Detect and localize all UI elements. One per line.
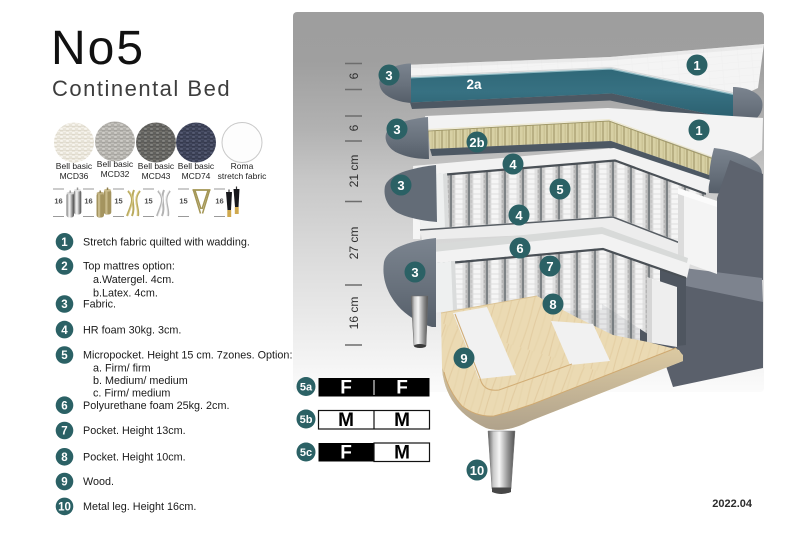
svg-text:M: M [338, 410, 354, 431]
svg-text:15: 15 [179, 197, 187, 206]
svg-text:15: 15 [114, 197, 122, 206]
svg-text:a. Firm/ firm: a. Firm/ firm [93, 362, 151, 374]
svg-text:M: M [394, 443, 410, 464]
svg-text:Wood.: Wood. [83, 476, 114, 488]
svg-text:4: 4 [61, 325, 68, 337]
svg-text:16: 16 [84, 197, 92, 206]
svg-text:Bell basic: Bell basic [56, 161, 93, 171]
svg-text:Bell basic: Bell basic [178, 161, 215, 171]
svg-text:8: 8 [549, 297, 556, 312]
svg-text:6: 6 [61, 400, 67, 412]
svg-text:Pocket. Height 10cm.: Pocket. Height 10cm. [83, 452, 186, 464]
svg-text:4: 4 [509, 157, 517, 172]
svg-text:Metal leg. Height 16cm.: Metal leg. Height 16cm. [83, 501, 196, 513]
svg-text:MCD36: MCD36 [60, 171, 89, 181]
svg-text:5b: 5b [300, 414, 313, 426]
svg-text:1: 1 [61, 237, 68, 249]
svg-text:Bell basic: Bell basic [97, 159, 134, 169]
svg-text:27 cm: 27 cm [347, 227, 361, 260]
svg-text:2b: 2b [469, 135, 484, 150]
svg-text:3: 3 [385, 68, 392, 83]
svg-text:4: 4 [515, 208, 523, 223]
svg-text:Roma: Roma [231, 161, 254, 171]
svg-text:No5: No5 [51, 22, 145, 75]
svg-text:c. Firm/ medium: c. Firm/ medium [93, 388, 170, 400]
svg-text:Fabric.: Fabric. [83, 299, 116, 311]
svg-text:5: 5 [556, 182, 563, 197]
svg-text:6: 6 [347, 124, 361, 131]
svg-text:Pocket. Height 13cm.: Pocket. Height 13cm. [83, 425, 186, 437]
svg-text:b. Medium/ medium: b. Medium/ medium [93, 375, 188, 387]
svg-text:2022.04: 2022.04 [712, 498, 753, 510]
svg-text:Continental Bed: Continental Bed [52, 76, 231, 101]
svg-text:9: 9 [61, 477, 67, 489]
svg-text:6: 6 [347, 72, 361, 79]
svg-text:6: 6 [516, 241, 523, 256]
svg-text:a.Watergel. 4cm.: a.Watergel. 4cm. [93, 274, 174, 286]
svg-text:10: 10 [470, 463, 484, 478]
svg-text:7: 7 [546, 259, 553, 274]
svg-text:Top mattres option:: Top mattres option: [83, 261, 175, 273]
svg-text:9: 9 [460, 351, 467, 366]
svg-text:5c: 5c [300, 447, 312, 459]
svg-text:1: 1 [693, 58, 700, 73]
svg-text:stretch fabric: stretch fabric [218, 171, 267, 181]
svg-text:Polyurethane foam 25kg. 2cm.: Polyurethane foam 25kg. 2cm. [83, 400, 229, 412]
svg-text:1: 1 [695, 123, 702, 138]
svg-text:3: 3 [411, 265, 418, 280]
svg-text:HR foam 30kg. 3cm.: HR foam 30kg. 3cm. [83, 324, 181, 336]
svg-text:16: 16 [215, 197, 223, 206]
svg-text:MCD32: MCD32 [101, 169, 130, 179]
svg-text:MCD74: MCD74 [182, 171, 211, 181]
svg-text:Stretch fabric quilted with wa: Stretch fabric quilted with wadding. [83, 237, 250, 249]
svg-text:3: 3 [61, 299, 67, 311]
svg-text:MCD43: MCD43 [142, 171, 171, 181]
svg-text:5a: 5a [300, 382, 313, 394]
svg-text:F: F [340, 443, 352, 464]
svg-text:b.Latex. 4cm.: b.Latex. 4cm. [93, 287, 158, 299]
svg-text:10: 10 [58, 502, 71, 514]
svg-text:Bell basic: Bell basic [138, 161, 175, 171]
svg-text:2: 2 [61, 261, 67, 273]
svg-text:8: 8 [61, 452, 68, 464]
svg-text:2a: 2a [466, 77, 482, 92]
svg-text:Micropocket. Height 15 cm. 7zo: Micropocket. Height 15 cm. 7zones. Optio… [83, 350, 292, 362]
svg-text:3: 3 [397, 178, 404, 193]
svg-text:7: 7 [61, 426, 67, 438]
svg-text:M: M [394, 410, 410, 431]
svg-text:3: 3 [393, 122, 400, 137]
svg-text:F: F [340, 378, 352, 399]
svg-text:5: 5 [61, 350, 68, 362]
svg-text:F: F [396, 378, 408, 399]
svg-text:15: 15 [144, 197, 152, 206]
svg-text:16: 16 [54, 197, 62, 206]
svg-text:21 cm: 21 cm [347, 155, 361, 188]
svg-text:16 cm: 16 cm [347, 297, 361, 330]
